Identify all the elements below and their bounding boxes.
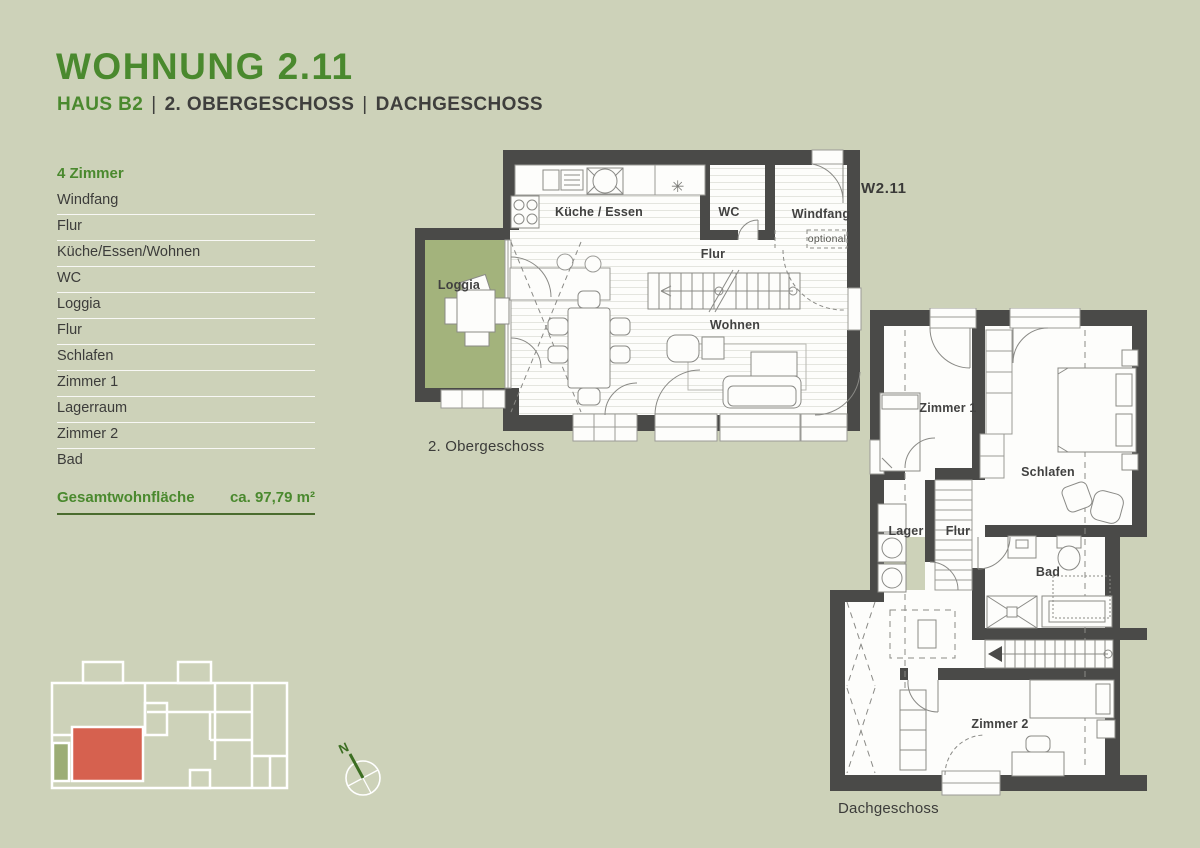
room-list-item: Zimmer 1 [57,371,315,397]
building-locator-drawing [48,658,298,798]
room-list: 4 Zimmer Windfang Flur Küche/Essen/Wohne… [57,162,315,474]
room-list-item: Flur [57,319,315,345]
stairs-down-icon [985,640,1113,668]
room-list-item: Flur [57,215,315,241]
stairs-icon [648,270,800,312]
floor-plan-dachgeschoss: Zimmer 1 Schlafen Lager Flur Bad Zimmer … [830,308,1150,808]
subtitle-floor1: 2. OBERGESCHOSS [165,94,355,115]
subtitle-separator: | [151,94,156,115]
unit-number-label: W2.11 [861,180,907,197]
room-label-flur: Flur [701,247,725,261]
subtitle-house: HAUS B2 [57,94,143,115]
plan-caption-dachgeschoss: Dachgeschoss [838,800,939,817]
washer-dryer-icon [878,504,906,592]
loggia-planter [441,390,505,408]
room-label-zimmer1: Zimmer 1 [919,401,976,415]
room-list-item: Schlafen [57,345,315,371]
page-title: WOHNUNG 2.11 [56,46,354,88]
total-area-value: ca. 97,79 m² [230,489,315,506]
stove-icon [511,196,539,228]
room-label-kueche: Küche / Essen [555,205,643,219]
page-subtitle: HAUS B2|2. OBERGESCHOSS|DACHGESCHOSS [57,94,543,116]
room-list-header: 4 Zimmer [57,162,315,189]
room-list-item: Zimmer 2 [57,423,315,449]
room-label-lager: Lager [888,524,923,538]
floor-plan-dachgeschoss-drawing [830,308,1150,808]
room-list-item: Loggia [57,293,315,319]
bed-schlafen-icon [1058,350,1138,470]
bed-zimmer1-icon [880,393,920,471]
highlighted-loggia [53,743,69,781]
room-label-wc: WC [718,205,739,219]
freezer-icon: ✳ [671,179,684,196]
room-list-item: Bad [57,449,315,474]
subtitle-separator: | [362,94,367,115]
room-list-item: Windfang [57,189,315,215]
north-label: N [336,739,351,757]
desk-icon [1012,752,1064,776]
room-label-schlafen: Schlafen [1021,465,1075,479]
brochure-page: WOHNUNG 2.11 HAUS B2|2. OBERGESCHOSS|DAC… [0,0,1200,848]
room-label-wohnen: Wohnen [710,318,760,332]
room-label-loggia: Loggia [438,278,480,292]
building-locator-map [48,658,298,798]
north-arrow-icon: N [333,738,397,802]
room-label-flur: Flur [946,524,970,538]
plan-caption-obergeschoss: 2. Obergeschoss [428,438,544,455]
sofa-icon [723,376,801,408]
oven-icon [543,170,583,190]
total-area-row: Gesamtwohnfläche ca. 97,79 m² [57,489,315,515]
subtitle-floor2: DACHGESCHOSS [376,94,543,115]
room-label-zimmer2: Zimmer 2 [971,717,1028,731]
attic-desk-icon [918,620,936,648]
room-list-item: WC [57,267,315,293]
room-label-optional: optional [808,233,846,245]
bath-sink-icon [1008,536,1036,558]
room-list-item: Lagerraum [57,397,315,423]
desk-chair-icon [1026,736,1050,752]
room-label-bad: Bad [1036,565,1060,579]
room-list-item: Küche/Essen/Wohnen [57,241,315,267]
floor-plan-obergeschoss-drawing: ✳ [415,148,865,448]
highlighted-unit [72,727,143,781]
total-area-label: Gesamtwohnfläche [57,489,195,506]
floor-plan-obergeschoss: ✳ [415,148,865,448]
compass: N [333,738,397,802]
room-label-windfang: Windfang [792,207,850,221]
kitchen-sink-icon [587,168,623,194]
